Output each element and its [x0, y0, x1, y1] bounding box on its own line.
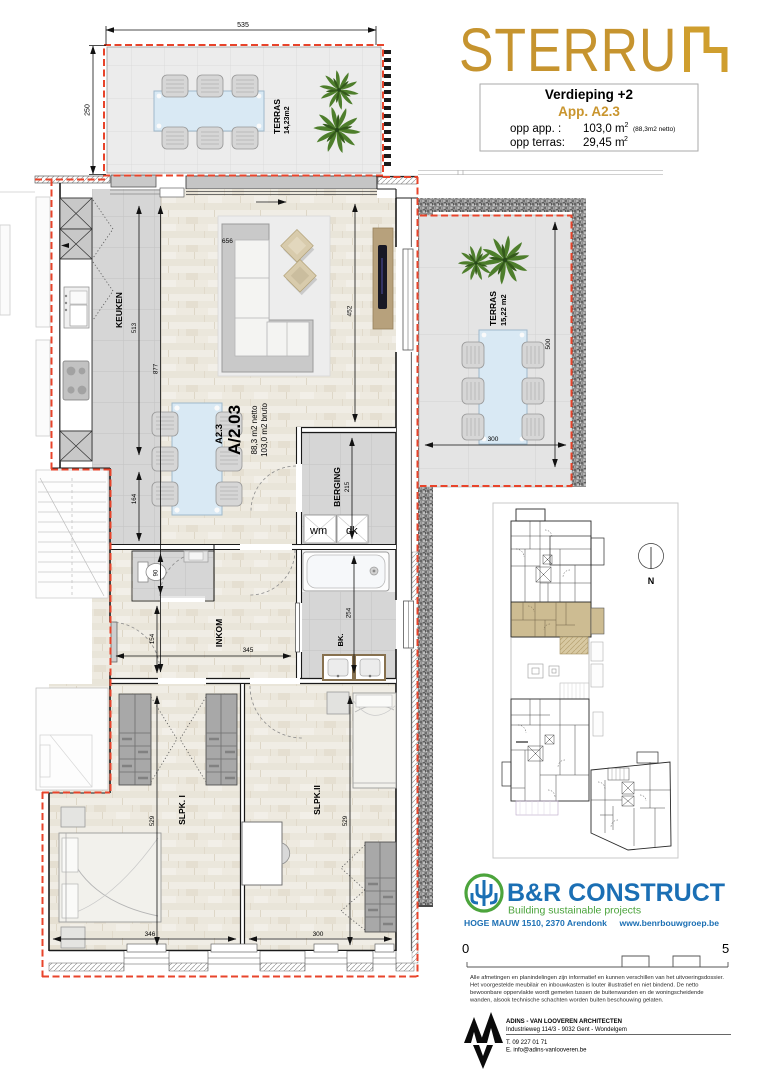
svg-text:INKOM: INKOM: [214, 619, 224, 647]
svg-text:Het voorgestelde meubilair en: Het voorgestelde meubilair en inbouwkast…: [470, 983, 698, 989]
svg-text:BK.: BK.: [336, 634, 345, 647]
svg-text:T. 09 227 01 71: T. 09 227 01 71: [506, 1040, 548, 1046]
svg-text:E. info@adins-vanlooveren.be: E. info@adins-vanlooveren.be: [506, 1048, 587, 1054]
svg-text:KEUKEN: KEUKEN: [114, 292, 124, 328]
svg-text:2: 2: [625, 122, 629, 129]
svg-text:TERRAS: TERRAS: [488, 291, 498, 326]
svg-text:452: 452: [347, 305, 354, 316]
svg-text:154: 154: [149, 633, 156, 644]
svg-text:2: 2: [624, 136, 628, 143]
svg-text:TERRAS: TERRAS: [272, 99, 282, 134]
svg-text:103,0 m2 bruto: 103,0 m2 bruto: [260, 403, 269, 457]
svg-text:opp app. :: opp app. :: [510, 123, 561, 135]
svg-text:wm: wm: [309, 525, 327, 537]
svg-text:877: 877: [153, 363, 160, 374]
svg-text:103,0 m: 103,0 m: [583, 123, 625, 135]
svg-text:254: 254: [346, 607, 353, 618]
svg-text:656: 656: [222, 238, 233, 245]
svg-text:(88,3m2 netto): (88,3m2 netto): [633, 126, 675, 133]
svg-text:5: 5: [722, 941, 729, 956]
svg-text:215: 215: [344, 481, 351, 492]
svg-text:164: 164: [131, 493, 138, 504]
svg-text:14,23m2: 14,23m2: [284, 106, 291, 134]
svg-text:90: 90: [154, 569, 160, 576]
svg-text:www.benrbouwgroep.be: www.benrbouwgroep.be: [619, 918, 720, 928]
svg-text:STERRU: STERRU: [459, 16, 677, 84]
svg-text:250: 250: [85, 104, 92, 116]
svg-text:SLPK. I: SLPK. I: [177, 795, 187, 825]
svg-text:513: 513: [131, 322, 138, 333]
svg-text:Alle afmetingen en planindelin: Alle afmetingen en planindelingen zijn i…: [470, 975, 724, 981]
svg-text:535: 535: [237, 22, 249, 29]
svg-text:B&R CONSTRUCT: B&R CONSTRUCT: [507, 879, 725, 907]
svg-text:bewoonbare oppervlakte wordt g: bewoonbare oppervlakte wordt gemeten tus…: [470, 990, 704, 996]
svg-text:Building sustainable projects: Building sustainable projects: [508, 905, 641, 917]
svg-text:N: N: [648, 576, 655, 586]
svg-text:300: 300: [313, 931, 324, 938]
svg-text:Verdieping +2: Verdieping +2: [545, 87, 633, 102]
svg-text:A2.3: A2.3: [214, 424, 225, 444]
svg-text:29,45 m: 29,45 m: [583, 137, 625, 149]
svg-text:BERGING: BERGING: [332, 467, 342, 507]
svg-text:A/2.03: A/2.03: [225, 405, 244, 455]
svg-text:wanden, alsook technische scha: wanden, alsook technische schachten word…: [469, 998, 664, 1004]
svg-text:345: 345: [243, 647, 254, 654]
svg-text:529: 529: [149, 815, 156, 826]
svg-text:opp terras:: opp terras:: [510, 137, 565, 149]
svg-text:ADINS - VAN LOOVEREN ARCHITECT: ADINS - VAN LOOVEREN ARCHITECTEN: [506, 1019, 622, 1025]
svg-text:346: 346: [145, 931, 156, 938]
svg-text:88,3 m2 netto: 88,3 m2 netto: [250, 405, 259, 454]
svg-text:HOGE MAUW 1510, 2370 Arendonk: HOGE MAUW 1510, 2370 Arendonk: [464, 918, 607, 928]
svg-text:529: 529: [342, 815, 349, 826]
svg-text:500: 500: [545, 338, 552, 349]
svg-text:300: 300: [488, 436, 499, 443]
svg-text:Industrieweg 114/3 - 9032 Gent: Industrieweg 114/3 - 9032 Gent - Wondelg…: [506, 1027, 627, 1033]
svg-text:0: 0: [462, 941, 469, 956]
svg-text:App. A2.3: App. A2.3: [558, 104, 620, 119]
svg-text:15,22 m2: 15,22 m2: [499, 294, 508, 326]
svg-text:SLPK.II: SLPK.II: [312, 785, 322, 815]
